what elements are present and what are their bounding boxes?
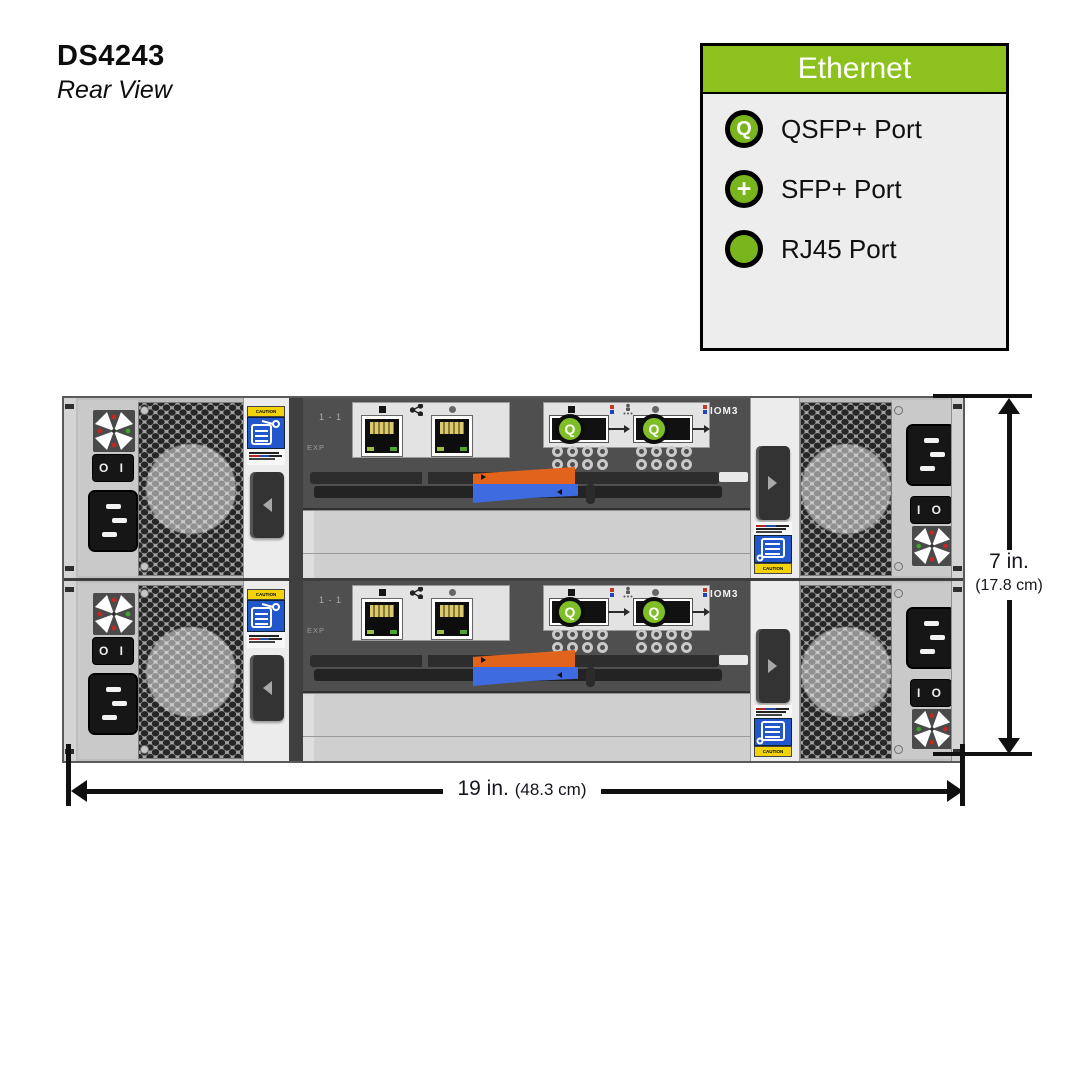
caution-fine-print — [754, 705, 792, 718]
handle-notch — [719, 655, 748, 665]
port-arrow-icon — [692, 611, 705, 613]
power-switch-label: O I — [99, 644, 127, 658]
screw-icon — [140, 406, 149, 415]
handle-hinge — [422, 653, 428, 669]
led-indicator-group — [636, 446, 696, 472]
page: DS4243 Rear View Ethernet Q QSFP+ Port +… — [0, 0, 1080, 1080]
network-share-icon — [410, 404, 423, 416]
width-cm: (48.3 cm) — [515, 780, 587, 799]
fan-fault-indicator-icon — [93, 410, 135, 452]
fan-fault-indicator-icon — [912, 526, 952, 566]
screw-icon — [894, 562, 903, 571]
qsfp-port-icon: Q — [555, 414, 585, 444]
qsfp-sas-port: Q — [634, 416, 692, 442]
iom-model-label: IOM3 — [710, 406, 738, 417]
iom-exp-label: EXP — [307, 626, 325, 635]
port-pair-label: 1 - 1 — [319, 412, 342, 422]
rj45-port — [362, 599, 402, 639]
width-inches: 19 in. — [457, 777, 508, 800]
screw-icon — [894, 745, 903, 754]
handle-notch — [719, 472, 748, 482]
screw-icon — [140, 562, 149, 571]
circle-indicator-icon — [449, 406, 456, 413]
activity-led — [390, 630, 397, 634]
port-id-icon — [703, 588, 707, 597]
rj45-pins — [370, 422, 394, 434]
handle-hinge — [586, 484, 595, 504]
port-id-icon — [610, 588, 614, 597]
iom-model-label: IOM3 — [710, 589, 738, 600]
caution-diagram — [754, 718, 792, 746]
fan-grille — [800, 585, 892, 759]
caution-fine-print — [754, 522, 792, 535]
sfp-port-icon: + — [725, 170, 763, 208]
rj45-pins — [370, 605, 394, 617]
triangle-right-icon — [768, 476, 777, 490]
power-switch-label: O I — [99, 461, 127, 475]
iom-blank-panel — [303, 693, 750, 761]
handle-hinge — [422, 470, 428, 486]
port-pair-label: 1 - 1 — [319, 595, 342, 605]
caution-fine-print — [247, 632, 285, 648]
screw-icon — [894, 589, 903, 598]
triangle-left-icon — [263, 681, 272, 695]
height-cm: (17.8 cm) — [950, 577, 1068, 595]
caution-label: CAUTION — [754, 522, 792, 574]
caution-diagram — [754, 535, 792, 563]
lever-arrow-icon — [481, 474, 486, 480]
width-dimension-line — [601, 789, 947, 794]
height-dimension-line — [1007, 412, 1012, 550]
page-title: DS4243 — [57, 40, 172, 73]
qsfp-symbol: Q — [736, 118, 752, 141]
qsfp-port-icon: Q — [639, 597, 669, 627]
port-id-icon — [703, 405, 707, 414]
square-indicator-icon — [379, 406, 386, 413]
port-id-icon — [610, 405, 614, 414]
handle-hinge — [586, 667, 595, 687]
caution-label: CAUTION — [247, 589, 285, 648]
lever-arrow-icon — [557, 489, 562, 495]
legend-label: QSFP+ Port — [781, 114, 922, 145]
circle-indicator-icon — [652, 406, 659, 413]
triangle-left-icon — [263, 498, 272, 512]
port-arrow-icon — [608, 611, 625, 613]
rj45-port — [432, 599, 472, 639]
shelf-row: O I CAUTION 1 - 1 EXP IOM3 — [64, 578, 963, 761]
activity-led — [460, 630, 467, 634]
power-switch-label: I O — [917, 686, 945, 700]
fan-grille — [138, 585, 244, 759]
ac-power-inlet — [88, 490, 138, 552]
caution-label: CAUTION — [247, 406, 285, 465]
link-led — [367, 630, 374, 634]
caution-label: CAUTION — [754, 705, 792, 757]
width-dimension-label: 19 in. (48.3 cm) — [438, 777, 606, 801]
led-indicator-group — [636, 629, 696, 655]
psu-latch-handle — [250, 655, 284, 721]
qsfp-port-icon: Q — [555, 597, 585, 627]
chassis-rear-view: O I CAUTION 1 - 1 EXP IOM3 — [62, 396, 965, 763]
chassis-divider — [289, 581, 303, 761]
triangle-right-icon — [768, 659, 777, 673]
psu-latch-handle — [250, 472, 284, 538]
arrow-right-icon — [947, 780, 963, 802]
title-block: DS4243 Rear View — [57, 40, 172, 105]
sas-port-panel: Q Q — [543, 402, 710, 448]
caution-fine-print — [247, 449, 285, 465]
height-dimension-label: 7 in. (17.8 cm) — [950, 550, 1068, 595]
chassis-divider — [289, 398, 303, 578]
rj45-pins — [440, 422, 464, 434]
ac-power-inlet — [906, 424, 956, 486]
activity-led — [390, 447, 397, 451]
qsfp-port-icon: Q — [639, 414, 669, 444]
legend-label: RJ45 Port — [781, 234, 897, 265]
legend-title: Ethernet — [703, 46, 1006, 94]
page-subtitle: Rear View — [57, 76, 172, 105]
square-indicator-icon — [568, 589, 575, 596]
caution-text: CAUTION — [247, 589, 285, 600]
fan-grille — [800, 402, 892, 576]
caution-text: CAUTION — [754, 746, 792, 757]
service-indicator-icon — [622, 586, 634, 598]
ethernet-port-panel — [352, 402, 510, 458]
rack-ear-right — [951, 581, 963, 761]
arrow-down-icon — [998, 738, 1020, 754]
qsfp-sas-port: Q — [634, 599, 692, 625]
legend-item-sfp: + SFP+ Port — [725, 170, 902, 208]
qsfp-sas-port: Q — [550, 416, 608, 442]
legend-item-rj45: RJ45 Port — [725, 230, 897, 268]
ethernet-port-panel — [352, 585, 510, 641]
sfp-symbol: + — [737, 175, 752, 204]
lever-arrow-icon — [481, 657, 486, 663]
screw-icon — [894, 406, 903, 415]
legend-box: Ethernet Q QSFP+ Port + SFP+ Port RJ45 P… — [700, 43, 1009, 351]
caution-text: CAUTION — [247, 406, 285, 417]
port-arrow-icon — [692, 428, 705, 430]
service-indicator-icon — [622, 403, 634, 415]
iom-blank-panel — [303, 510, 750, 578]
circle-indicator-icon — [652, 589, 659, 596]
fan-fault-indicator-icon — [93, 593, 135, 635]
rj45-port — [362, 416, 402, 456]
caution-diagram — [247, 600, 285, 632]
legend-label: SFP+ Port — [781, 174, 902, 205]
screw-icon — [140, 589, 149, 598]
activity-led — [460, 447, 467, 451]
power-switch: O I — [92, 637, 134, 665]
rj45-port-icon — [725, 230, 763, 268]
link-led — [437, 630, 444, 634]
port-arrow-icon — [608, 428, 625, 430]
link-led — [437, 447, 444, 451]
psu-latch-handle — [756, 629, 790, 703]
caution-text: CAUTION — [754, 563, 792, 574]
link-led — [367, 447, 374, 451]
height-inches: 7 in. — [950, 550, 1068, 574]
square-indicator-icon — [568, 406, 575, 413]
screw-icon — [140, 745, 149, 754]
power-switch: O I — [92, 454, 134, 482]
lever-arrow-icon — [557, 672, 562, 678]
legend-item-qsfp: Q QSFP+ Port — [725, 110, 922, 148]
network-share-icon — [410, 587, 423, 599]
ac-power-inlet — [88, 673, 138, 735]
qsfp-sas-port: Q — [550, 599, 608, 625]
fan-grille — [138, 402, 244, 576]
shelf-row: O I CAUTION 1 - 1 EXP IOM3 — [64, 398, 963, 578]
sas-port-panel: Q Q — [543, 585, 710, 631]
power-switch-label: I O — [917, 503, 945, 517]
ac-power-inlet — [906, 607, 956, 669]
psu-latch-handle — [756, 446, 790, 520]
height-dimension-line — [1007, 600, 1012, 738]
rj45-pins — [440, 605, 464, 617]
power-switch: I O — [910, 679, 952, 707]
width-dimension-line — [85, 789, 443, 794]
power-switch: I O — [910, 496, 952, 524]
fan-fault-indicator-icon — [912, 709, 952, 749]
circle-indicator-icon — [449, 589, 456, 596]
rj45-port — [432, 416, 472, 456]
iom-exp-label: EXP — [307, 443, 325, 452]
qsfp-port-icon: Q — [725, 110, 763, 148]
caution-diagram — [247, 417, 285, 449]
square-indicator-icon — [379, 589, 386, 596]
